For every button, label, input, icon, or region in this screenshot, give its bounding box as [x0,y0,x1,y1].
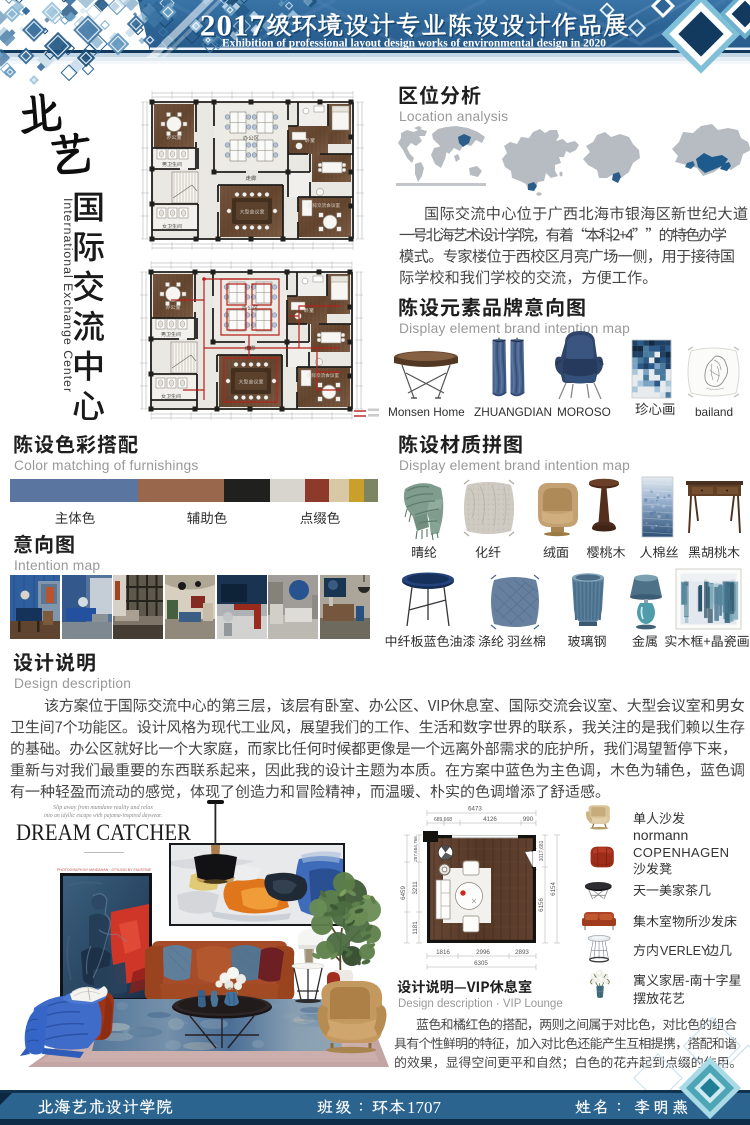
svg-text:into an idyllic escape with pa: into an idyllic escape with pajama-inspi… [44,813,162,819]
svg-text:PHOTOGRAPH BY MINDAHAN · STYLI: PHOTOGRAPH BY MINDAHAN · STYLING BY FAUS… [57,868,152,872]
svg-text:Display element brand intentio: Display element brand intention map [399,321,630,336]
svg-text:Display element brand intentio: Display element brand intention map [399,458,630,473]
svg-text:1707: 1707 [407,1098,442,1117]
svg-text:International Exchange Center: International Exchange Center [61,198,75,393]
svg-text:287,684,766: 287,684,766 [413,836,418,862]
svg-text:MOROSO: MOROSO [557,405,611,419]
svg-text:2996: 2996 [476,949,490,956]
svg-text:1816: 1816 [436,949,450,956]
svg-text:Slip away from mundane reality: Slip away from mundane reality and relax [53,804,153,811]
svg-text:6459: 6459 [400,886,407,900]
svg-text:4126: 4126 [483,816,497,823]
svg-text:6305: 6305 [474,960,488,967]
svg-text:1181: 1181 [412,921,419,935]
svg-text:Location analysis: Location analysis [399,109,508,124]
svg-text:3211: 3211 [412,881,419,895]
svg-text:Exhibition of professional lay: Exhibition of professional layout design… [222,38,606,50]
svg-text:990: 990 [523,816,534,823]
svg-text:6156: 6156 [538,898,545,912]
svg-text:DREAM CATCHER: DREAM CATCHER [16,820,191,846]
svg-text:2893: 2893 [515,949,529,956]
svg-text:Color matching of furnishings: Color matching of furnishings [14,458,198,473]
svg-text:Design description · VIP Loung: Design description · VIP Lounge [398,998,563,1010]
svg-text:689,668: 689,668 [434,817,452,823]
svg-text:Design description: Design description [14,676,131,691]
svg-text:ZHUANGDIAN: ZHUANGDIAN [474,405,552,419]
svg-text:Intention map: Intention map [14,558,100,573]
svg-text:VERLEY: VERLEY [660,944,710,958]
svg-text:bailand: bailand [695,405,733,419]
svg-text:COPENHAGEN: COPENHAGEN [633,845,729,860]
svg-text:6473: 6473 [468,806,482,813]
svg-text:6154: 6154 [550,882,557,896]
svg-text:1017,681: 1017,681 [539,840,545,861]
svg-text:Monsen Home: Monsen Home [388,405,465,419]
svg-text:normann: normann [633,827,688,843]
